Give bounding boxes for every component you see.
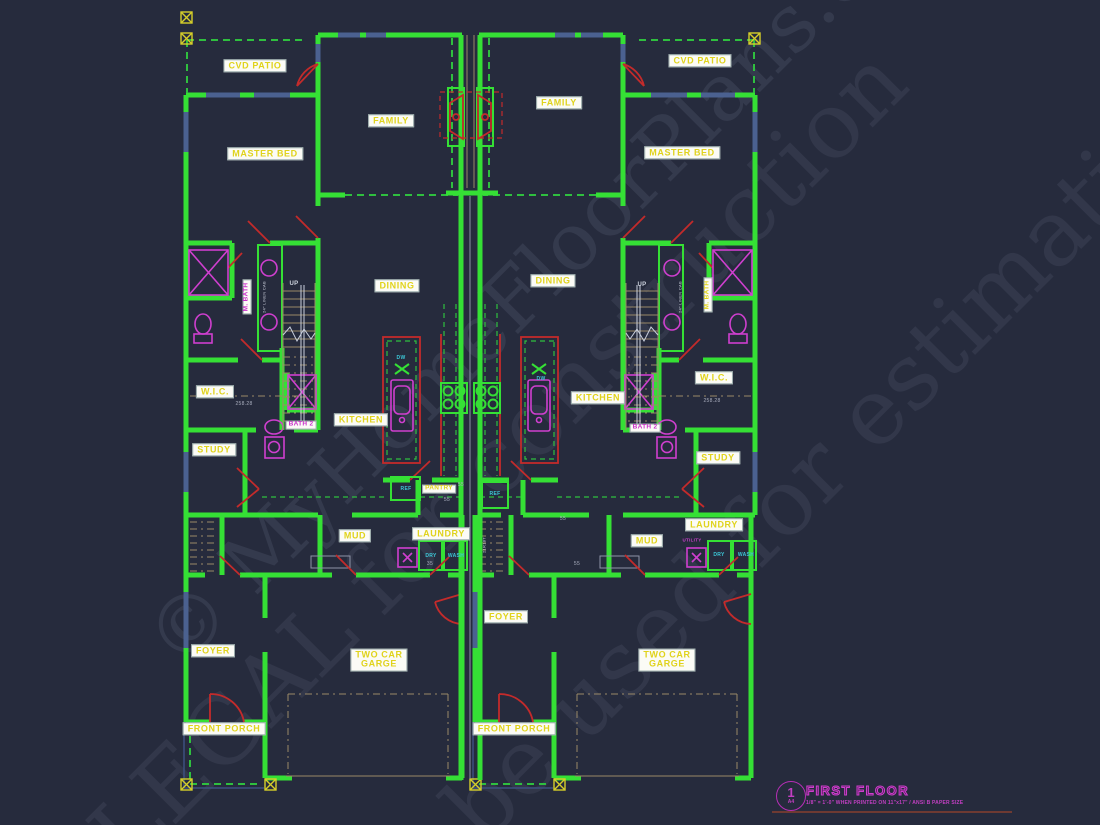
room-label-kitchen-left: KITCHEN: [334, 413, 388, 426]
drawing-title: FIRST FLOOR: [806, 783, 909, 798]
back-to-back-fireplaces: [440, 88, 502, 146]
room-label-study-left: STUDY: [192, 443, 236, 456]
utility-text-right: UTILITY: [682, 538, 701, 543]
dim-55a-left: 55: [458, 482, 464, 488]
room-label-wic-left: W.I.C.: [196, 385, 234, 398]
room-label-laundry-left: LAUNDRY: [412, 527, 470, 540]
room-label-kitchen-right: KITCHEN: [571, 391, 625, 404]
room-label-pantry-left: PANTRY: [422, 485, 456, 494]
stair-up-text-right: UP: [638, 282, 647, 288]
washer-text-right: WASH: [738, 552, 754, 558]
dryer-text-right: DRY: [713, 552, 724, 558]
room-label-laundry-right: LAUNDRY: [685, 518, 743, 531]
stair-count-text-right: 21R18T: [482, 537, 487, 553]
dim-55b-left: 55: [444, 497, 450, 503]
floorplan-drawing: © MyHomeFloorPlans.com ILLEGAL for const…: [0, 0, 1100, 825]
room-label-foyer-left: FOYER: [191, 644, 235, 657]
sheet-number: A4: [777, 799, 805, 805]
dryer-text-left: DRY: [425, 553, 436, 559]
room-label-dining-right: DINING: [530, 274, 575, 287]
room-label-study-right: STUDY: [696, 451, 740, 464]
room-label-family-left: FAMILY: [368, 114, 414, 127]
dim-55a-right: 55: [560, 516, 566, 522]
room-label-bath2-left: BATH 2: [286, 421, 317, 430]
dim-55b-right: 55: [574, 561, 580, 567]
room-label-mbath-left: M. BATH: [243, 280, 252, 315]
dim-wic-right: 258.28: [703, 398, 720, 404]
room-label-mbath-right: M. BATH: [704, 278, 713, 313]
stair-up-text-left: UP: [290, 281, 299, 287]
ref-text-right: REF: [490, 491, 501, 497]
room-label-garage-left: TWO CAR GARGE: [350, 649, 407, 672]
drawing-scale-note: 1/8" = 1'-0" WHEN PRINTED ON 11"x17" / A…: [806, 800, 963, 806]
room-label-mud-left: MUD: [339, 529, 371, 542]
detail-number-bubble: 1 A4: [776, 781, 806, 811]
room-label-cvd-patio-right: CVD PATIO: [668, 54, 731, 67]
room-label-master-bed-right: MASTER BED: [644, 146, 720, 159]
garage-left-line2: GARGE: [361, 659, 397, 669]
room-label-front-porch-right: FRONT PORCH: [473, 722, 556, 735]
floorplan-screenshot: © MyHomeFloorPlans.com ILLEGAL for const…: [0, 0, 1100, 825]
garage-right-line2: GARGE: [649, 659, 685, 669]
room-label-family-right: FAMILY: [536, 96, 582, 109]
room-label-garage-right: TWO CAR GARGE: [638, 649, 695, 672]
room-label-bath2-right: BATH 2: [630, 424, 661, 433]
detail-number: 1: [777, 785, 805, 800]
dim-35-left: 35: [427, 561, 433, 567]
room-label-foyer-right: FOYER: [484, 610, 528, 623]
dim-wic-left: 258.28: [235, 401, 252, 407]
dw-text-left: DW: [397, 355, 406, 361]
dw-text-right: DW: [537, 376, 546, 382]
washer-text-left: WASH: [448, 553, 464, 559]
ref-text-left: REF: [401, 486, 412, 492]
linen-cab-text-right: 24" LINEN CAB: [678, 281, 683, 313]
room-label-cvd-patio-left: CVD PATIO: [223, 59, 286, 72]
room-label-front-porch-left: FRONT PORCH: [183, 722, 266, 735]
linen-cab-text-left: 24" LINEN CAB: [262, 281, 267, 313]
lot-corner-marker-icon: [181, 12, 192, 23]
room-label-master-bed-left: MASTER BED: [227, 147, 303, 160]
room-label-mud-right: MUD: [631, 534, 663, 547]
room-label-wic-right: W.I.C.: [695, 371, 733, 384]
room-label-dining-left: DINING: [374, 279, 419, 292]
